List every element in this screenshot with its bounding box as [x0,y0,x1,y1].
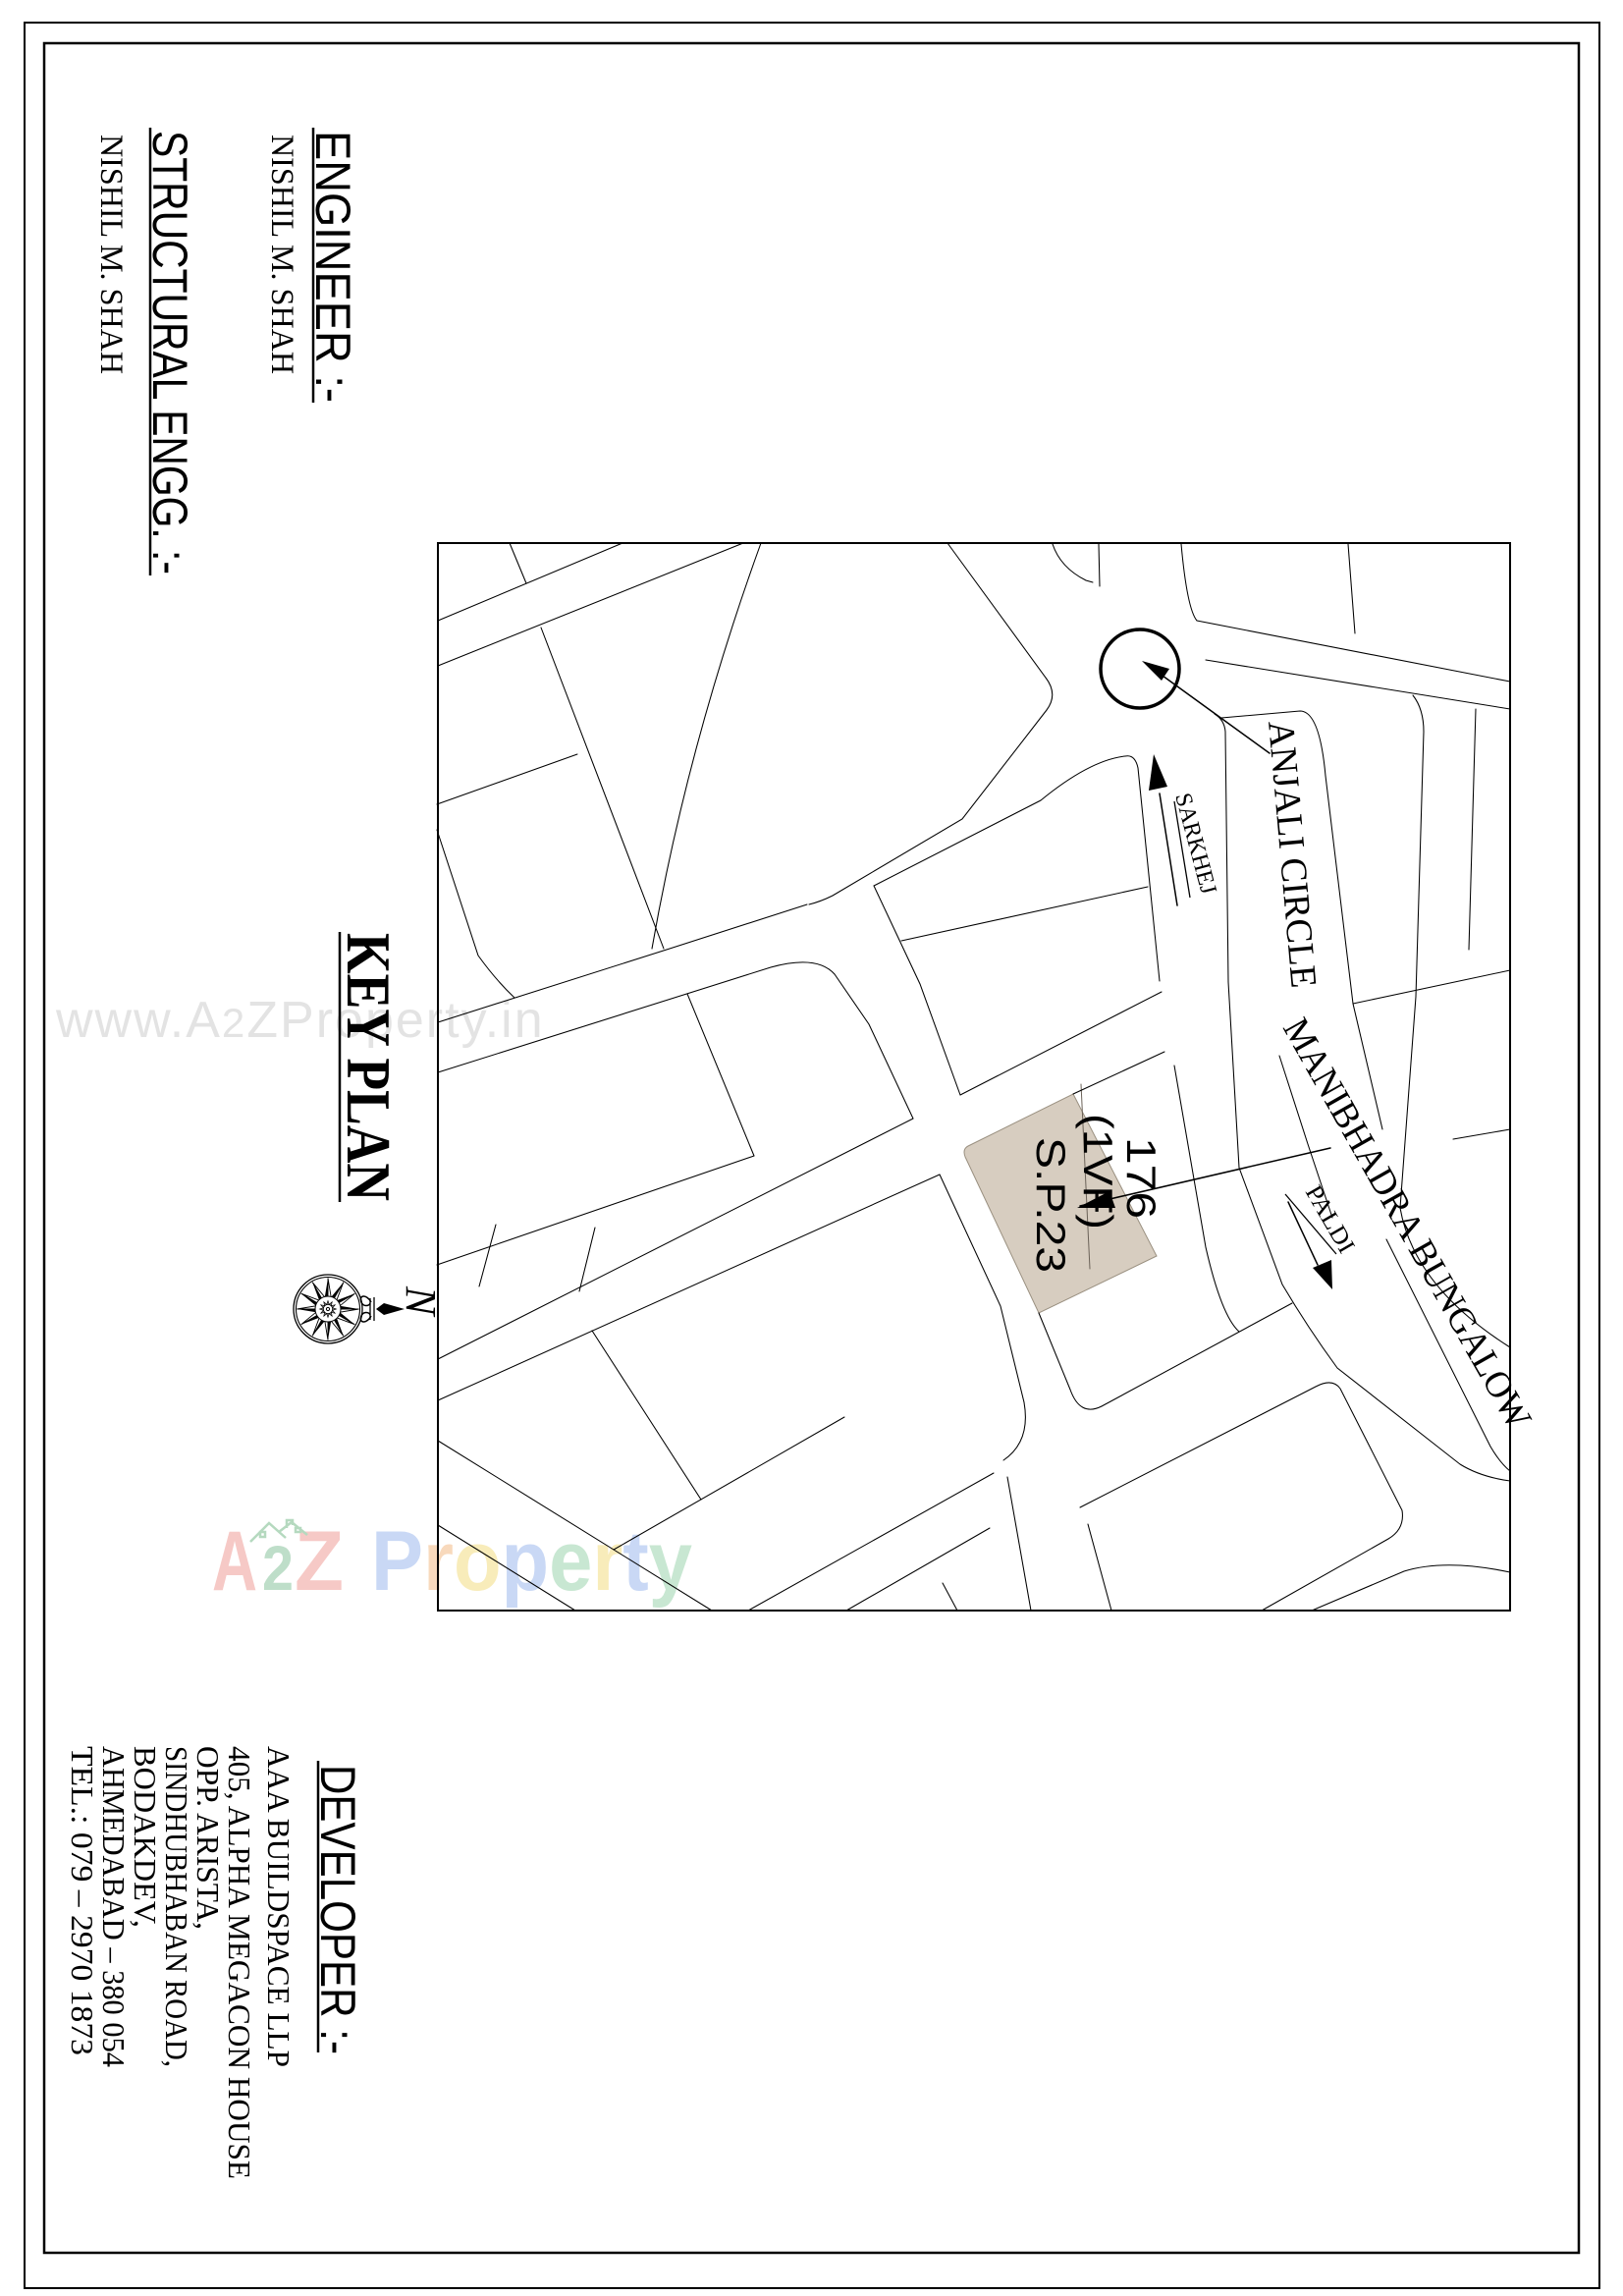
svg-text:AHMEDABAD – 380 054: AHMEDABAD – 380 054 [96,1746,132,2067]
svg-text:OPP. ARISTA,: OPP. ARISTA, [190,1746,226,1930]
svg-text:TEL.: 079 – 2970 1873: TEL.: 079 – 2970 1873 [65,1746,100,2055]
svg-text:Z: Z [295,1514,344,1609]
svg-text:AAA BUILDSPACE LLP: AAA BUILDSPACE LLP [261,1746,297,2067]
svg-text:NISHIL M. SHAH: NISHIL M. SHAH [264,135,299,374]
svg-text:BODAKDEV,: BODAKDEV, [128,1746,163,1928]
svg-text:176: 176 [1118,1137,1164,1219]
svg-text:SINDHUBHABAN ROAD,: SINDHUBHABAN ROAD, [159,1746,194,2067]
svg-text:NISHIL M. SHAH: NISHIL M. SHAH [93,135,129,374]
svg-text:Property: Property [371,1514,692,1609]
svg-text:S.P.23: S.P.23 [1028,1137,1074,1273]
svg-text:A: A [212,1514,257,1609]
svg-text:KEY PLAN: KEY PLAN [334,933,404,1201]
svg-text:2: 2 [262,1533,294,1604]
svg-text:www.A2ZProperty.in: www.A2ZProperty.in [55,992,545,1049]
svg-text:(1VF): (1VF) [1075,1114,1121,1230]
svg-text:405, ALPHA MEGACON HOUSE: 405, ALPHA MEGACON HOUSE [222,1746,257,2179]
